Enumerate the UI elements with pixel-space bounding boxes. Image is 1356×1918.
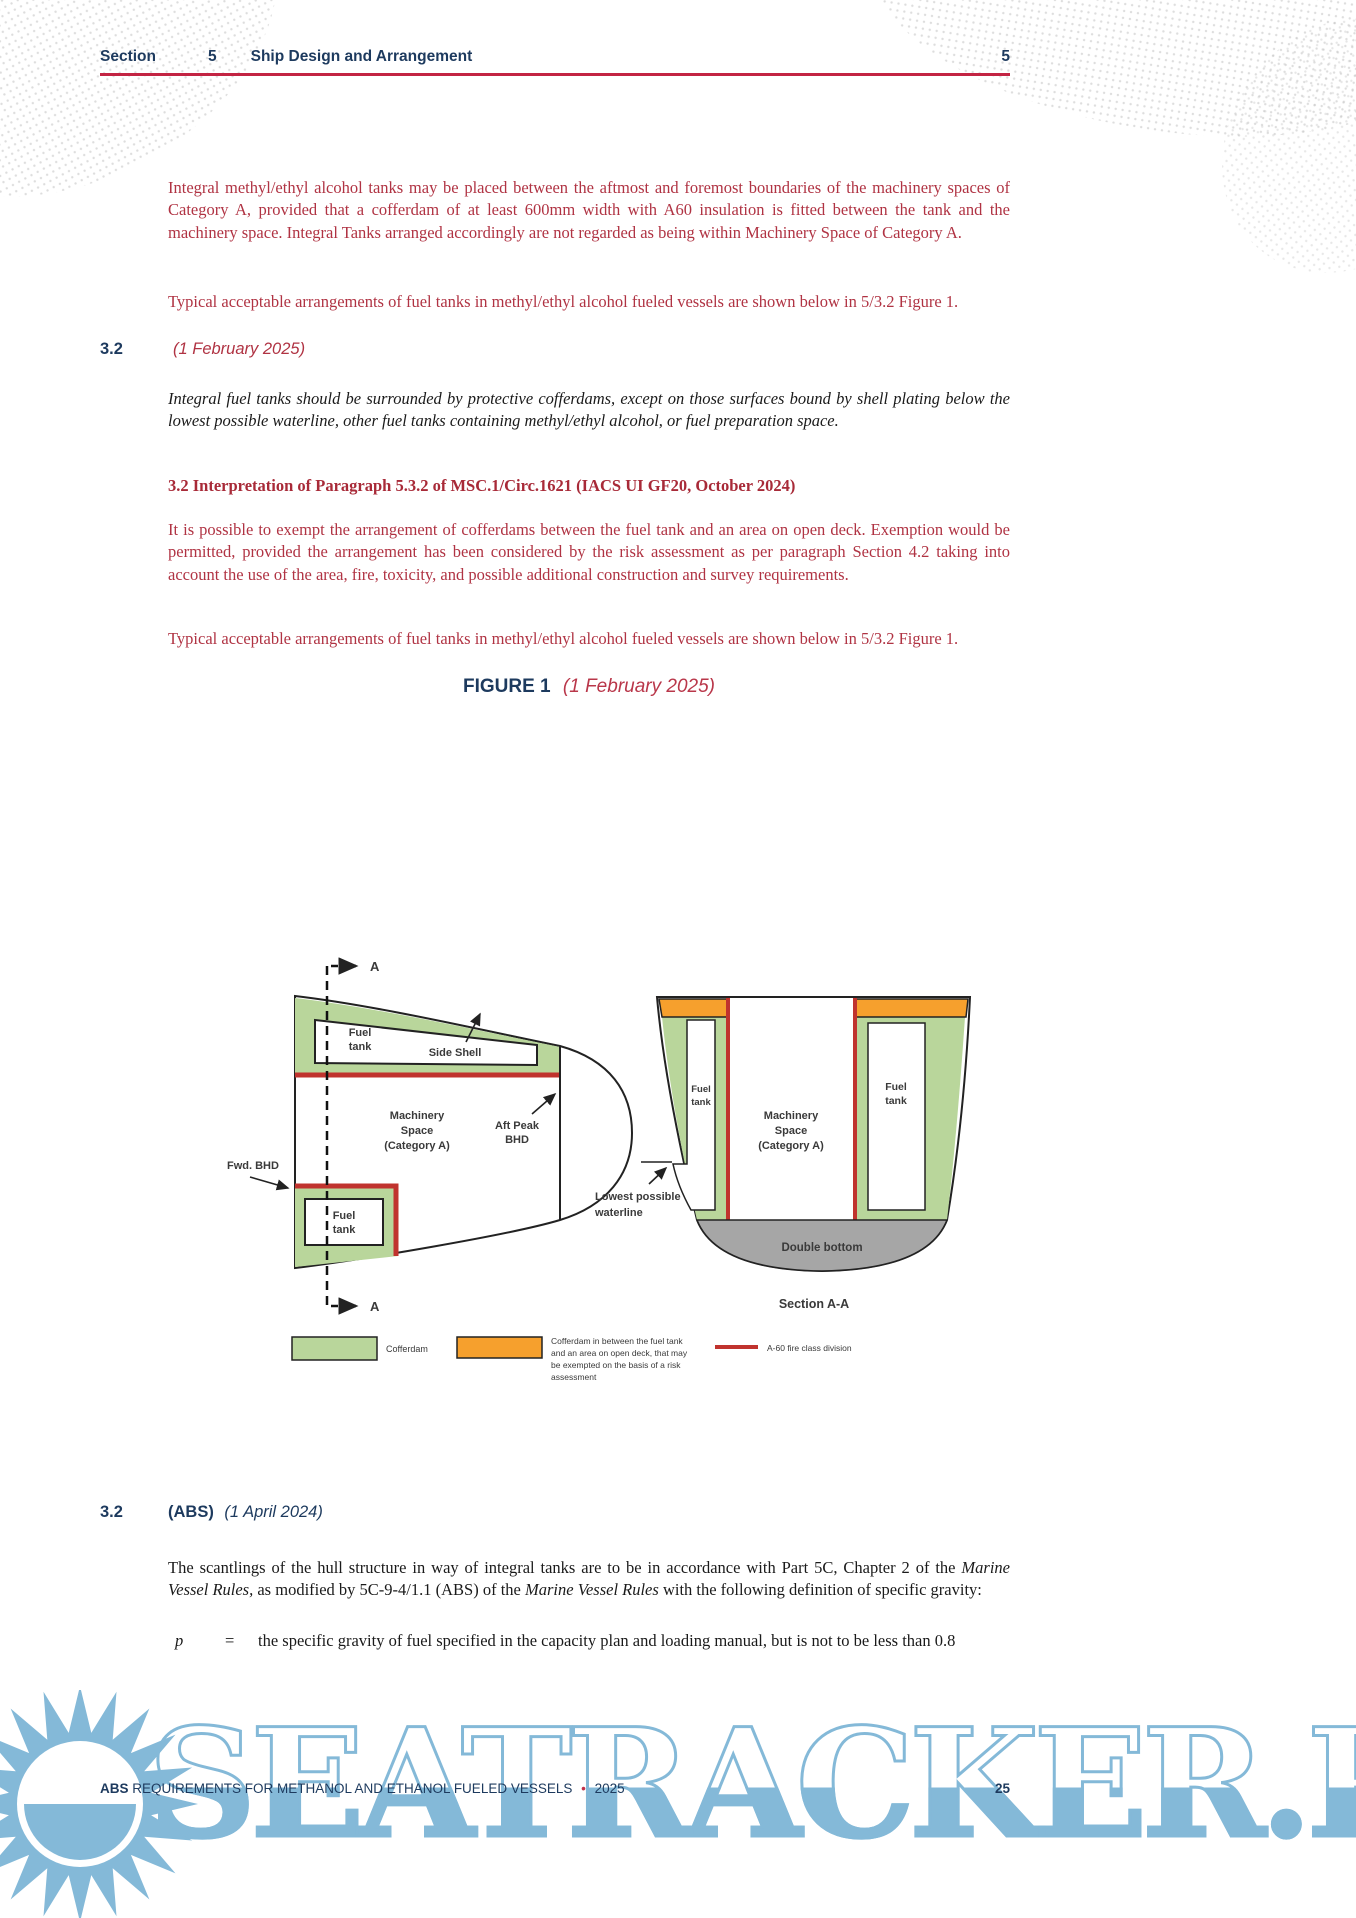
legend-orange-label-4: assessment [551,1372,597,1382]
fuel-tank-top-label-2: tank [349,1041,373,1053]
figure-1-diagram: A A Fuel tank Side Shell Machinery Space… [210,920,990,1405]
interpretation-heading: 3.2 Interpretation of Paragraph 5.3.2 of… [168,476,1010,496]
section-3-2-feb-number: 3.2 [100,340,123,359]
section-marker-a-top: A [370,959,380,974]
machinery-space-plan-label-3: (Category A) [384,1140,450,1152]
fuel-tank-bottom-label-2: tank [333,1224,357,1236]
figure-legend: Cofferdam Cofferdam in between the fuel … [292,1336,852,1382]
legend-orange-swatch [457,1337,542,1358]
header-rule [100,73,1010,76]
header-section-title: Ship Design and Arrangement [251,48,473,66]
paragraph-scantlings: The scantlings of the hull structure in … [168,1557,1010,1602]
header-section-number: 5 [208,48,217,66]
fuel-tank-right-section-label-2: tank [885,1095,907,1107]
paragraph-exemption: It is possible to exempt the arrangement… [168,519,1010,587]
legend-green-swatch [292,1337,377,1360]
plan-view: A A Fuel tank Side Shell Machinery Space… [227,959,632,1314]
fwd-bhd-arrow [250,1177,288,1188]
abs-heading-label: (ABS) [168,1503,214,1521]
header-page-number: 5 [1001,48,1010,66]
page-header: Section 5 Ship Design and Arrangement 5 [100,48,1010,66]
fuel-tank-left-section-label-2: tank [691,1097,711,1108]
footer-bullet: • [581,1781,586,1796]
section-aa-caption: Section A-A [779,1297,849,1311]
figure-title: FIGURE 1 (1 February 2025) [168,676,1010,698]
paragraph-typical-arrangements-1: Typical acceptable arrangements of fuel … [168,291,1010,314]
legend-orange-label-2: and an area on open deck, that may [551,1348,688,1358]
section-aa-view: Lowest possible waterline Machinery Spac… [594,997,970,1311]
lowest-waterline-label-2: waterline [594,1207,643,1219]
legend-orange-label-3: be exempted on the basis of a risk [551,1360,681,1370]
fwd-bhd-label: Fwd. BHD [227,1160,279,1172]
side-shell-label: Side Shell [429,1047,482,1059]
footer-page-number: 25 [995,1781,1010,1796]
footer-text: REQUIREMENTS FOR METHANOL AND ETHANOL FU… [132,1781,572,1796]
document-page: Section 5 Ship Design and Arrangement 5 … [0,0,1356,1918]
aft-peak-bhd-label-2: BHD [505,1134,529,1146]
lowest-waterline-label-1: Lowest possible [595,1191,681,1203]
footer-year: 2025 [595,1781,625,1796]
abs-heading-date: (1 April 2024) [224,1503,322,1521]
definition-symbol: p [175,1630,183,1653]
header-section-label: Section [100,48,156,66]
paragraph-cofferdam-rule: Integral fuel tanks should be surrounded… [168,388,1010,433]
fuel-tank-left-section-label-1: Fuel [691,1084,711,1095]
fuel-tank-top-label-1: Fuel [349,1027,372,1039]
page-footer: ABS REQUIREMENTS FOR METHANOL AND ETHANO… [100,1781,1010,1796]
section-marker-a-bottom: A [370,1299,380,1314]
machinery-space-plan-label-2: Space [401,1125,433,1137]
legend-a60-label: A-60 fire class division [767,1343,852,1353]
footer-brand: ABS [100,1781,129,1796]
definition-equals: = [225,1630,234,1653]
section-3-2-abs-heading: (ABS) (1 April 2024) [168,1503,323,1522]
machinery-space-section-label-2: Space [775,1125,807,1137]
fuel-tank-bottom-plan [305,1199,383,1245]
section-3-2-feb-date: (1 February 2025) [173,340,305,359]
exempt-cofferdam-left [659,999,727,1017]
figure-1-svg: A A Fuel tank Side Shell Machinery Space… [210,920,990,1400]
legend-cofferdam-label: Cofferdam [386,1344,428,1354]
aft-peak-bhd-label-1: Aft Peak [495,1120,540,1132]
fuel-tank-bottom-label-1: Fuel [333,1210,356,1222]
definition-text: the specific gravity of fuel specified i… [258,1630,1000,1653]
sun-logo [0,1690,205,1918]
section-3-2-abs-number: 3.2 [100,1503,123,1522]
machinery-space-section-label-1: Machinery [764,1110,819,1122]
machinery-space-plan-label-1: Machinery [390,1110,445,1122]
exempt-cofferdam-right [856,999,968,1017]
figure-title-date: (1 February 2025) [563,676,715,697]
figure-title-label: FIGURE 1 [463,676,551,697]
fuel-tank-right-section-label-1: Fuel [885,1081,907,1093]
machinery-space-section-label-3: (Category A) [758,1140,824,1152]
legend-orange-label-1: Cofferdam in between the fuel tank [551,1336,683,1346]
paragraph-integral-tanks: Integral methyl/ethyl alcohol tanks may … [168,177,1010,245]
double-bottom-label: Double bottom [781,1242,862,1254]
waterline-arrow [649,1168,666,1184]
paragraph-typical-arrangements-2: Typical acceptable arrangements of fuel … [168,628,1010,651]
fuel-tank-right-section [868,1023,925,1210]
